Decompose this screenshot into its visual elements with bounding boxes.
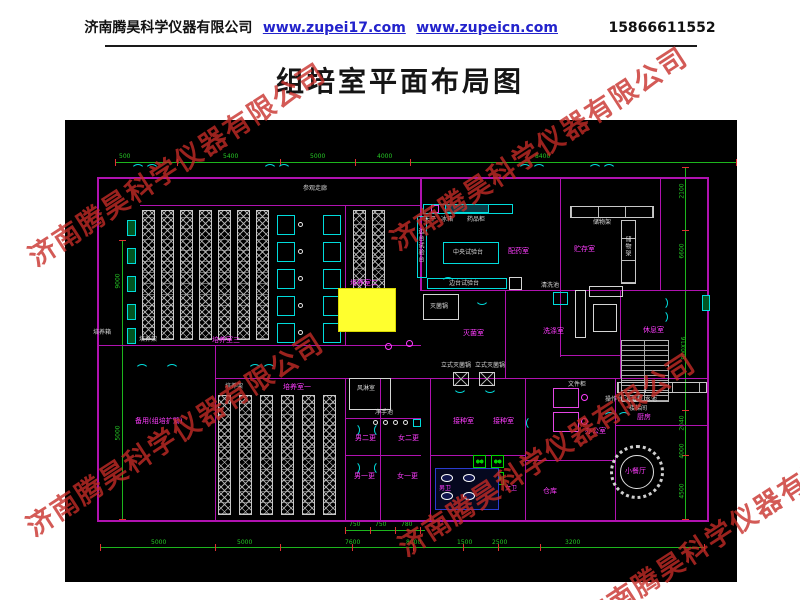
header: 济南腾昊科学仪器有限公司 www.zupei17.com www.zupeicn… [0, 17, 800, 37]
room-label: 小餐厅 [625, 468, 646, 475]
dim-label: 5000 [310, 154, 325, 160]
wall [615, 425, 709, 426]
dim-tick [682, 230, 689, 231]
dim-tick [280, 544, 281, 551]
room-label: 男二更 [355, 435, 376, 442]
room-label: 仓库 [543, 488, 557, 495]
wall [660, 177, 661, 290]
kitchen-counter [617, 382, 707, 393]
laminar-bench [473, 455, 486, 468]
culture-rack [237, 210, 250, 340]
clean-bench [277, 215, 295, 235]
wall [345, 418, 421, 419]
equip-label: 中央试验台 [453, 250, 483, 256]
window [127, 220, 136, 236]
equip-label: 储物架 [624, 236, 630, 257]
door-arc [654, 310, 668, 324]
dim-label: 2500 [492, 540, 507, 546]
dim-label: 5000 [116, 425, 122, 440]
toilet [463, 492, 475, 500]
dim-label: 780 [401, 522, 412, 528]
dim-label: 4500 [680, 483, 686, 498]
room-label: 配药室 [508, 248, 529, 255]
phone-number: 15866611552 [608, 20, 715, 36]
dim-label: 6600 [680, 243, 686, 258]
door-arc [602, 164, 616, 178]
dim-tick [100, 544, 101, 551]
toilet [463, 474, 475, 482]
room-label: 洗涤室 [543, 328, 564, 335]
dim-label: 750 [375, 522, 386, 528]
equip-label: 立式灭菌锅 [441, 363, 471, 369]
equip-label: 边台试验台 [417, 228, 423, 263]
room-label: 男卫 [439, 486, 451, 492]
dim-tick [704, 544, 705, 551]
door-arc [475, 291, 489, 305]
dim-tick [177, 159, 178, 166]
symbol-icon [406, 340, 413, 347]
dim-label: 5400 [223, 154, 238, 160]
wall [560, 355, 620, 356]
coffee-table [593, 304, 617, 332]
wall [140, 205, 421, 206]
bench-knob [298, 249, 303, 254]
dim-tick [682, 167, 689, 168]
dim-tick [115, 159, 116, 166]
equip-label: 文件柜 [568, 382, 586, 388]
culture-rack [199, 210, 212, 340]
room-label: 接种室 [493, 418, 514, 425]
door-arc [518, 164, 532, 178]
clean-bench [323, 269, 341, 289]
dim-label: 8000 [406, 540, 421, 546]
wall [525, 460, 615, 461]
door-arc [145, 164, 159, 178]
window [127, 248, 136, 264]
door-arc [263, 164, 277, 178]
wash-basin [403, 420, 408, 425]
wall [505, 290, 506, 378]
equip-label: 操作台 消毒柜 水池 [605, 397, 657, 403]
bench-knob [298, 222, 303, 227]
dim-label: 9000 [116, 273, 122, 288]
wash-basin [393, 420, 398, 425]
dim-tick [540, 544, 541, 551]
room-label: 培养室二 [350, 280, 378, 287]
room-label: 女一更 [397, 473, 418, 480]
clean-bench [277, 269, 295, 289]
culture-rack [281, 395, 294, 515]
equip-label: 培养箱 [93, 330, 111, 336]
office-chair [581, 394, 588, 401]
room-label: 备用(组培扩繁) [135, 418, 182, 425]
culture-rack [218, 395, 231, 515]
window [127, 276, 136, 292]
clean-bench [277, 242, 295, 262]
air-shower-box [349, 378, 391, 410]
equip-label: 冰箱 [441, 217, 453, 223]
equip-label: 立式灭菌锅 [475, 363, 505, 369]
room-label: 厨房 [637, 414, 651, 421]
wall [420, 290, 709, 291]
room-label: 女卫 [505, 486, 517, 492]
equip-label: 边台试验台 [449, 281, 479, 287]
dim-line [100, 547, 705, 548]
door-arc [374, 461, 388, 475]
cabinet [431, 205, 439, 213]
door-arc [374, 423, 388, 437]
page: 济南腾昊科学仪器有限公司 www.zupei17.com www.zupeicn… [0, 0, 800, 600]
dim-label: 5000 [237, 540, 252, 546]
culture-rack [180, 210, 193, 340]
wall [430, 378, 431, 520]
dim-tick [395, 527, 396, 534]
equipment-strip [445, 204, 489, 213]
culture-rack [256, 210, 269, 340]
room-label: 办公室 [585, 428, 606, 435]
toilet [441, 492, 453, 500]
dim-label: 7600 [345, 540, 360, 546]
wash-sink [553, 292, 568, 305]
bench-knob [298, 276, 303, 281]
wall [97, 520, 709, 522]
wall [97, 345, 421, 346]
autoclave [479, 372, 495, 386]
dim-tick [215, 544, 216, 551]
zone-label: 参观走廊 [303, 186, 327, 192]
equip-label: 天平 [424, 217, 436, 223]
door-arc [135, 364, 149, 378]
header-divider [105, 45, 697, 47]
room-label: 培养室一 [283, 384, 311, 391]
dim-line [115, 162, 737, 163]
page-title: 组培室平面布局图 [0, 60, 800, 100]
link-zupei17[interactable]: www.zupei17.com [263, 20, 406, 36]
culture-rack [323, 395, 336, 515]
wall [345, 455, 421, 456]
dim-label: 4000 [377, 154, 392, 160]
basin-unit [413, 419, 421, 427]
room-label: 灭菌室 [463, 330, 484, 337]
laminar-bench [491, 455, 504, 468]
wall [97, 177, 709, 179]
bench-knob [298, 303, 303, 308]
equip-label: 灭菌锅 [430, 304, 448, 310]
dim-label: 3200 [565, 540, 580, 546]
door-arc [603, 412, 617, 426]
door-arc [588, 164, 602, 178]
dim-line [345, 530, 425, 531]
equip-label: 风淋室 [357, 386, 375, 392]
office-desk [553, 388, 579, 408]
clean-bench [277, 323, 295, 343]
door-arc [262, 364, 276, 378]
clean-bench [323, 242, 341, 262]
window [702, 295, 710, 311]
company-name: 济南腾昊科学仪器有限公司 [84, 20, 252, 36]
dim-label: 5000 [151, 540, 166, 546]
symbol-icon [385, 343, 392, 350]
office-desk [553, 412, 579, 432]
door-arc [654, 296, 668, 310]
room-label: 休息室 [643, 327, 664, 334]
room-label: 女二更 [398, 435, 419, 442]
dim-label: 2100 [680, 183, 686, 198]
door-arc [617, 412, 631, 426]
equip-label: 净手池 [375, 410, 393, 416]
equip-label: 药品柜 [467, 217, 485, 223]
floor-plan-canvas: 500 5400 5000 4000 8400 5000 5000 7600 8… [65, 120, 737, 582]
door-arc [277, 164, 291, 178]
culture-rack [142, 210, 155, 340]
bench-knob [298, 330, 303, 335]
equip-label: 培养架 [139, 337, 157, 343]
door-arc [532, 164, 546, 178]
wall [97, 177, 99, 522]
toilet [441, 474, 453, 482]
dim-tick [736, 159, 737, 166]
culture-rack [161, 210, 174, 340]
dim-label: 500 [119, 154, 130, 160]
wall [707, 177, 709, 522]
wall [215, 345, 216, 520]
door-arc [248, 364, 262, 378]
dim-tick [345, 527, 346, 534]
dim-label: 900X16 [682, 336, 688, 359]
dim-tick [682, 410, 689, 411]
door-arc [165, 364, 179, 378]
sofa [575, 290, 586, 338]
culture-rack [218, 210, 231, 340]
culture-rack [260, 395, 273, 515]
wash-basin [373, 420, 378, 425]
wall [525, 378, 526, 520]
room-label: 贮存室 [574, 246, 595, 253]
dim-label: 2040 [680, 415, 686, 430]
dim-label: 750 [349, 522, 360, 528]
equip-label: 培养架 [225, 384, 243, 390]
equip-label: 清洗池 [541, 283, 559, 289]
wall [345, 378, 346, 520]
dim-label: 1500 [457, 540, 472, 546]
clean-bench [277, 296, 295, 316]
link-zupeicn[interactable]: www.zupeicn.com [416, 20, 558, 36]
window [127, 304, 136, 320]
dim-label: 4000 [680, 443, 686, 458]
door-arc [526, 416, 540, 430]
dim-tick [355, 159, 356, 166]
dim-tick [410, 159, 411, 166]
culture-rack [239, 395, 252, 515]
equip-label: 储物架 [593, 220, 611, 226]
window [127, 328, 136, 344]
dim-tick [119, 240, 126, 241]
highlight-room [338, 288, 396, 332]
door-arc [131, 164, 145, 178]
room-label: 男一更 [354, 473, 375, 480]
sink-box [509, 277, 522, 290]
wash-basin [383, 420, 388, 425]
room-label: 接种室 [453, 418, 474, 425]
dim-label: 8400 [535, 154, 550, 160]
dim-line [122, 240, 123, 520]
autoclave [453, 372, 469, 386]
dim-tick [370, 527, 371, 534]
office-chair [581, 418, 588, 425]
culture-rack [302, 395, 315, 515]
clean-bench [323, 215, 341, 235]
equip-label: 楼梯间 [629, 406, 647, 412]
storage-shelf [570, 206, 654, 218]
dim-tick [420, 527, 421, 534]
room-label: 培养室三 [212, 337, 240, 344]
sofa [589, 286, 623, 297]
